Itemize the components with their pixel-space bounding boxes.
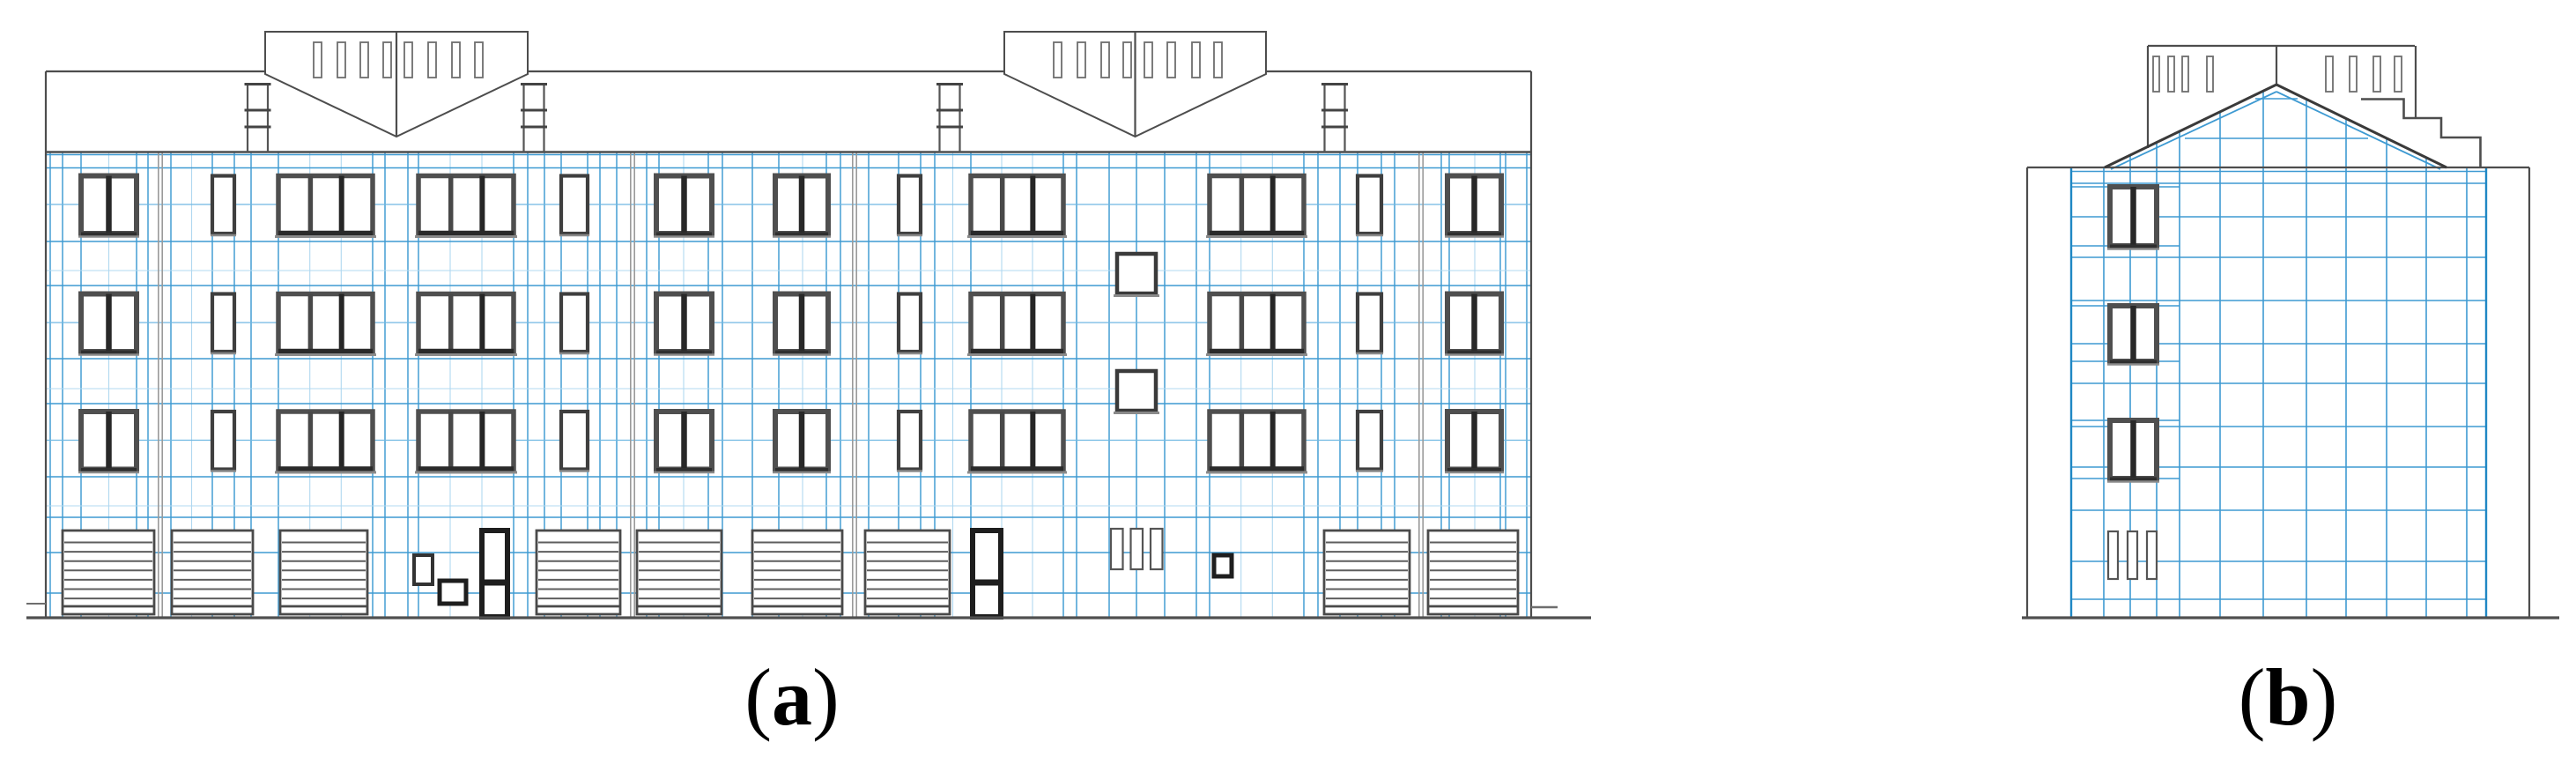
svg-text:(a): (a)	[744, 652, 839, 742]
svg-text:(b): (b)	[2239, 652, 2337, 742]
